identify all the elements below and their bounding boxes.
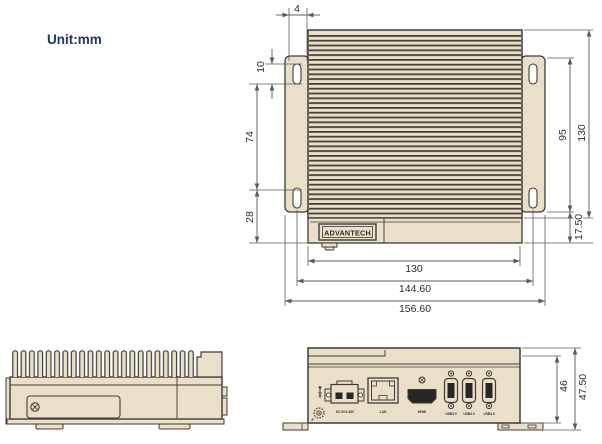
side-foot-right: [159, 424, 190, 429]
front-tab-left: [283, 423, 308, 430]
svg-text:74: 74: [244, 131, 256, 143]
heatsink-fins: [309, 35, 521, 215]
side-foot-left: [36, 424, 63, 429]
dim-mounting-span: 144.60: [297, 281, 533, 295]
top-view: ADVANTECH 4 10 74 28: [244, 3, 593, 315]
brand-logo-text: ADVANTECH: [324, 229, 371, 238]
mount-slot-top-right: [529, 64, 537, 84]
mount-slot-bottom-right: [529, 188, 537, 208]
lan-label: LAN: [380, 410, 387, 414]
dim-front-depth: 17.50: [570, 212, 585, 243]
drawing-svg: Unit:mm ADVANTECH 4: [0, 0, 602, 444]
side-access-panel: [27, 396, 120, 418]
svg-text:47.50: 47.50: [577, 374, 589, 400]
front-view: DC IN 9-36V LAN HDMI USB3.0: [283, 348, 589, 430]
dimension-drawing: Unit:mm ADVANTECH 4: [0, 0, 602, 444]
dim-overall-width: 156.60: [285, 301, 545, 315]
side-view: [6, 350, 227, 429]
front-foot-tip: [325, 247, 334, 250]
usb3-label: USB3.0: [483, 412, 494, 416]
usb1-label: USB3.0: [445, 412, 456, 416]
dim-overall-height: 47.50: [575, 348, 589, 430]
power-terminal-block: [325, 381, 364, 403]
mount-slot-bottom-left: [293, 188, 301, 208]
unit-label: Unit:mm: [47, 32, 102, 47]
hdmi-label: HDMI: [418, 410, 426, 414]
usb2-label: USB3.0: [463, 412, 474, 416]
lan-port: [368, 378, 398, 403]
dim-inner-height: 46: [557, 356, 570, 423]
side-rear-nub-top: [222, 387, 227, 396]
svg-text:95: 95: [557, 129, 569, 141]
svg-text:28: 28: [244, 211, 256, 223]
dim-bracket-height: 95: [557, 58, 570, 212]
side-base-plate: [7, 419, 224, 424]
svg-text:130: 130: [576, 124, 588, 142]
side-rear-block: [197, 352, 222, 377]
dim-body-width: 130: [308, 261, 520, 275]
svg-text:4: 4: [294, 3, 300, 15]
mount-slot-top-left: [293, 64, 301, 84]
side-heatsink-fins: [12, 350, 196, 377]
svg-text:17.50: 17.50: [573, 214, 585, 240]
dim-slot-spacing: 74: [244, 84, 257, 190]
svg-text:144.60: 144.60: [399, 283, 431, 295]
dim-body-height: 130: [576, 30, 589, 218]
svg-text:46: 46: [558, 380, 570, 392]
dim-slot-to-edge: 28: [244, 190, 257, 243]
svg-text:130: 130: [405, 263, 423, 275]
side-rear-nub-bottom: [222, 398, 227, 415]
svg-text:156.60: 156.60: [399, 303, 431, 315]
front-foot: [322, 243, 337, 247]
svg-text:10: 10: [255, 61, 267, 73]
power-label: DC IN 9-36V: [336, 410, 355, 414]
